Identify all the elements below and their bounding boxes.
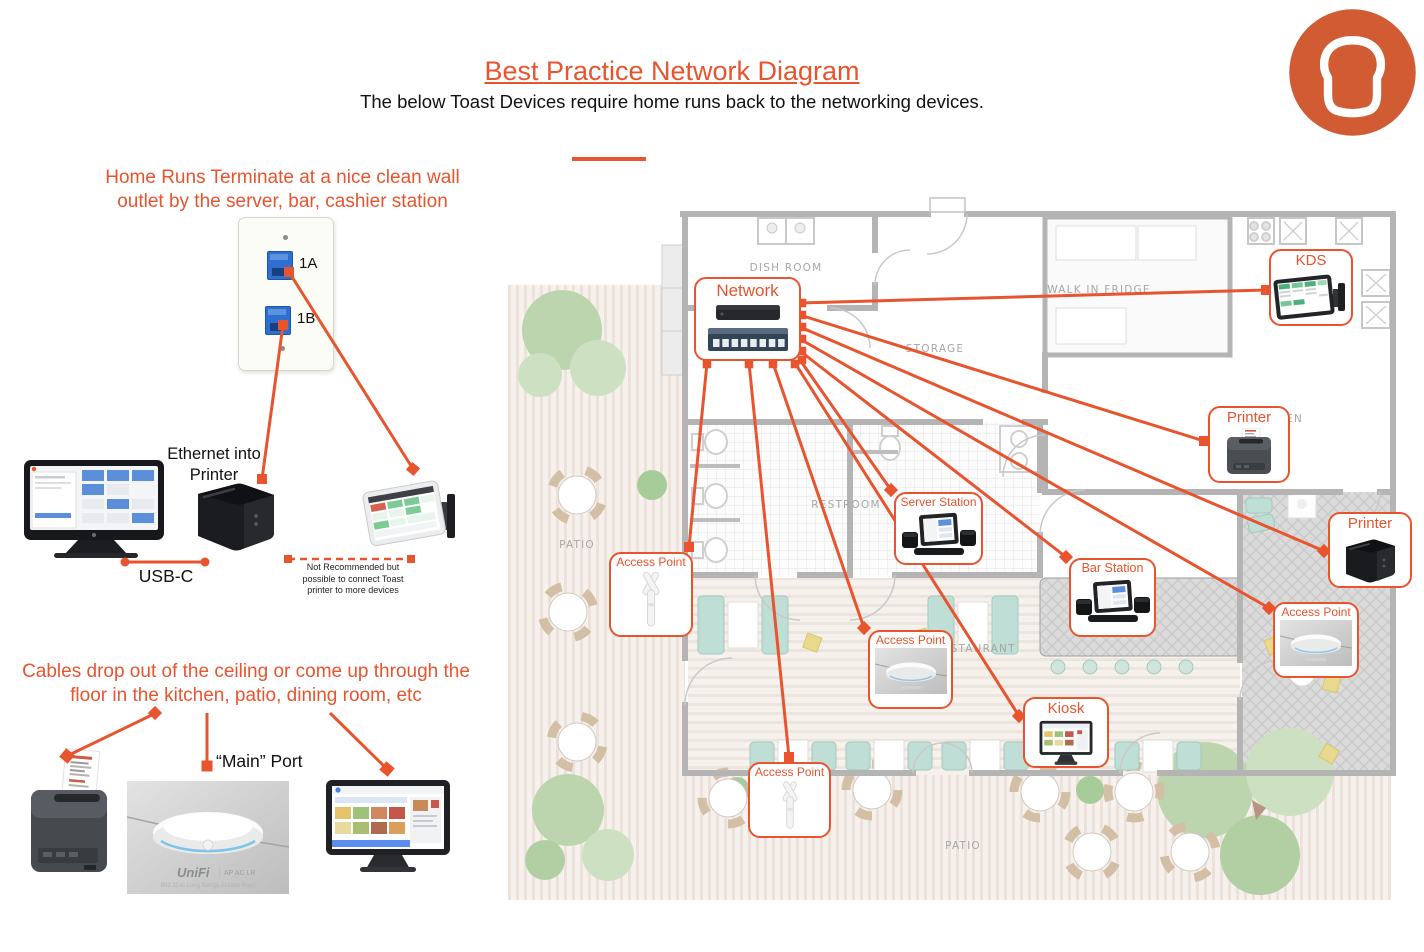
unifi-brand-text: UniFi	[177, 865, 210, 880]
callout-access-point-bottom-label: Access Point	[755, 765, 824, 780]
toast-cube-printer-icon	[1338, 534, 1402, 586]
room-label-patio-left: PATIO	[559, 539, 595, 551]
outdoor-antenna-icon	[762, 780, 818, 832]
wall-mounted-tablet-image	[362, 472, 460, 560]
callout-network-label: Network	[716, 280, 778, 301]
room-label-walk-in-fridge: WALK IN FRIDGE	[1047, 284, 1150, 296]
callout-bar-station: Bar Station	[1069, 558, 1156, 637]
room-label-patio-bottom: PATIO	[945, 840, 981, 852]
room-label-restroom: RESTROOM	[811, 499, 881, 511]
outlet-screw	[280, 346, 285, 351]
callout-network: Network	[694, 277, 801, 361]
usb-c-label: USB-C	[130, 566, 202, 587]
impact-printer-icon	[1217, 428, 1281, 478]
callout-printer-right-label: Printer	[1348, 515, 1392, 534]
kiosk-screen-icon	[1030, 719, 1102, 766]
callout-access-point-left-label: Access Point	[616, 555, 685, 570]
unifi-model-text: AP AC LR	[224, 870, 255, 877]
toast-logo-icon	[1288, 8, 1417, 137]
outlet-screw	[283, 235, 288, 240]
unifi-access-point-image: UniFi AP AC LR 802.11ac Long Range Acces…	[127, 781, 289, 894]
callout-access-point-right-label: Access Point	[1281, 605, 1350, 620]
callout-kds: KDS	[1269, 249, 1353, 326]
pos-terminal-image	[16, 458, 182, 560]
network-diagram-page: { "page": { "title": "Best Practice Netw…	[0, 0, 1424, 952]
not-recommended-note: Not Recommended but possible to connect …	[294, 562, 412, 597]
room-label-dish-room: DISH ROOM	[750, 262, 823, 274]
divider-line	[572, 157, 646, 161]
toast-tablet-image	[312, 778, 464, 874]
callout-kiosk: Kiosk	[1023, 697, 1109, 768]
ethernet-jack-1a	[267, 251, 293, 280]
page-subtitle: The below Toast Devices require home run…	[292, 91, 1052, 113]
pos-terminal-icon	[1074, 577, 1152, 625]
callout-kiosk-label: Kiosk	[1048, 700, 1085, 719]
ethernet-jack-1b	[265, 306, 291, 335]
router-and-switch-icon	[700, 301, 796, 357]
wall-outlet	[238, 217, 334, 371]
cables-note: Cables drop out of the ceiling or come u…	[18, 660, 474, 709]
room-label-storage: STORAGE	[906, 343, 964, 355]
callout-printer-kitchen-label: Printer	[1227, 409, 1271, 428]
toast-printer-image	[188, 476, 284, 556]
callout-bar-station-label: Bar Station	[1082, 561, 1144, 577]
outdoor-antenna-icon	[623, 570, 679, 630]
callout-access-point-right: Access Point	[1273, 602, 1359, 678]
unifi-caption-text: 802.11ac Long Range Access Point	[161, 883, 256, 889]
ceiling-access-point-icon	[1280, 620, 1352, 666]
outlet-port-1b-label: 1B	[297, 310, 315, 327]
callout-printer-kitchen: Printer	[1208, 406, 1290, 483]
callout-server-station-label: Server Station	[900, 495, 976, 510]
callout-access-point-mid-label: Access Point	[876, 633, 945, 648]
pos-terminal-icon	[900, 510, 978, 558]
callout-server-station: Server Station	[894, 492, 983, 565]
callout-access-point-bottom: Access Point	[748, 762, 831, 838]
page-title: Best Practice Network Diagram	[292, 56, 1052, 87]
kitchen-display-icon	[1273, 271, 1349, 323]
callout-printer-right: Printer	[1328, 512, 1412, 588]
callout-access-point-mid: Access Point	[868, 630, 953, 709]
impact-printer-image	[26, 748, 114, 880]
callout-access-point-left: Access Point	[609, 552, 693, 637]
ceiling-access-point-icon	[875, 648, 947, 694]
main-port-label: “Main” Port	[216, 751, 303, 772]
callout-kds-label: KDS	[1296, 252, 1327, 271]
home-runs-note: Home Runs Terminate at a nice clean wall…	[85, 166, 480, 215]
outlet-port-1a-label: 1A	[299, 255, 317, 272]
